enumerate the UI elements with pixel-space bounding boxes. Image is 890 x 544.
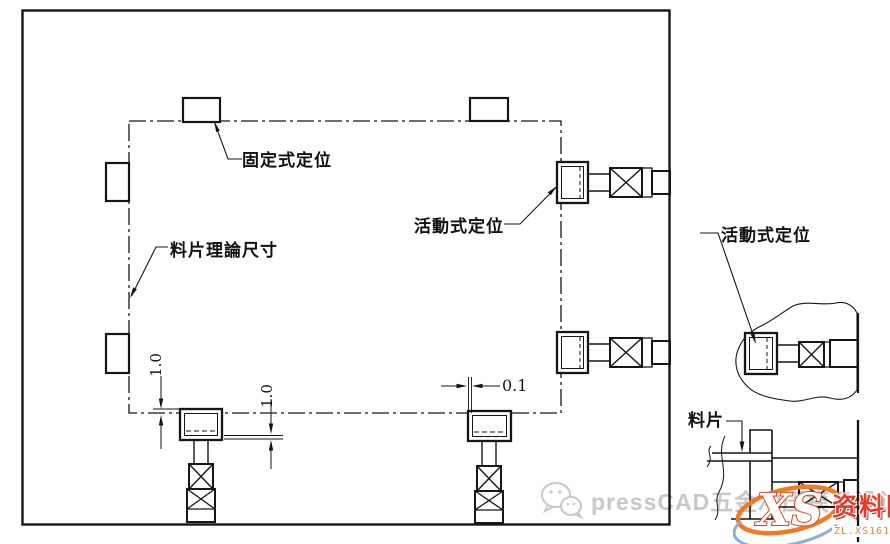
movable-stop-label-main: 活動式定位 bbox=[414, 212, 504, 237]
logo-site-name: 资料网 bbox=[832, 487, 890, 523]
fixed-stop-left-2 bbox=[106, 334, 129, 373]
cad-drawing-canvas: pressCAD五金冲压模具设计 bbox=[0, 0, 890, 544]
movable-stop-bottom-2 bbox=[468, 411, 511, 523]
leader-strip bbox=[726, 421, 744, 452]
fixed-stop-top-1 bbox=[183, 98, 220, 122]
detail-view bbox=[736, 302, 858, 401]
logo-monogram: XS bbox=[754, 485, 823, 536]
movable-stop-label-detail: 活動式定位 bbox=[721, 221, 811, 246]
movable-stop-bottom-1 bbox=[180, 409, 222, 522]
dimension-block-bottom-gap bbox=[224, 399, 283, 469]
dimension-side-clearance bbox=[441, 377, 500, 413]
dim-text-side-clearance: 0.1 bbox=[502, 376, 527, 395]
leader-movable-stop-main bbox=[504, 186, 557, 224]
movable-stop-right-2 bbox=[557, 332, 670, 373]
dim-text-block-bottom-gap: 1.0 bbox=[258, 384, 276, 408]
logo-site-url: ZL.XS1616.COM bbox=[832, 526, 890, 537]
material-outline-label: 料片理論尺寸 bbox=[170, 236, 278, 261]
leader-fixed-stop bbox=[214, 121, 242, 159]
drawing-linework bbox=[0, 0, 890, 544]
leader-material-outline bbox=[130, 247, 168, 298]
strip-label: 料片 bbox=[688, 406, 724, 431]
leader-movable-stop-detail bbox=[700, 233, 756, 344]
material-outline bbox=[129, 121, 561, 413]
fixed-stop-top-2 bbox=[470, 98, 508, 121]
movable-stop-right-1 bbox=[557, 162, 670, 203]
outer-frame bbox=[23, 11, 670, 525]
site-logo: XS 资料网 ZL.XS1616.COM bbox=[733, 469, 890, 544]
fixed-stop-left-1 bbox=[106, 163, 129, 201]
dim-text-block-top-gap: 1.0 bbox=[147, 353, 165, 377]
fixed-stop-label: 固定式定位 bbox=[242, 146, 332, 171]
